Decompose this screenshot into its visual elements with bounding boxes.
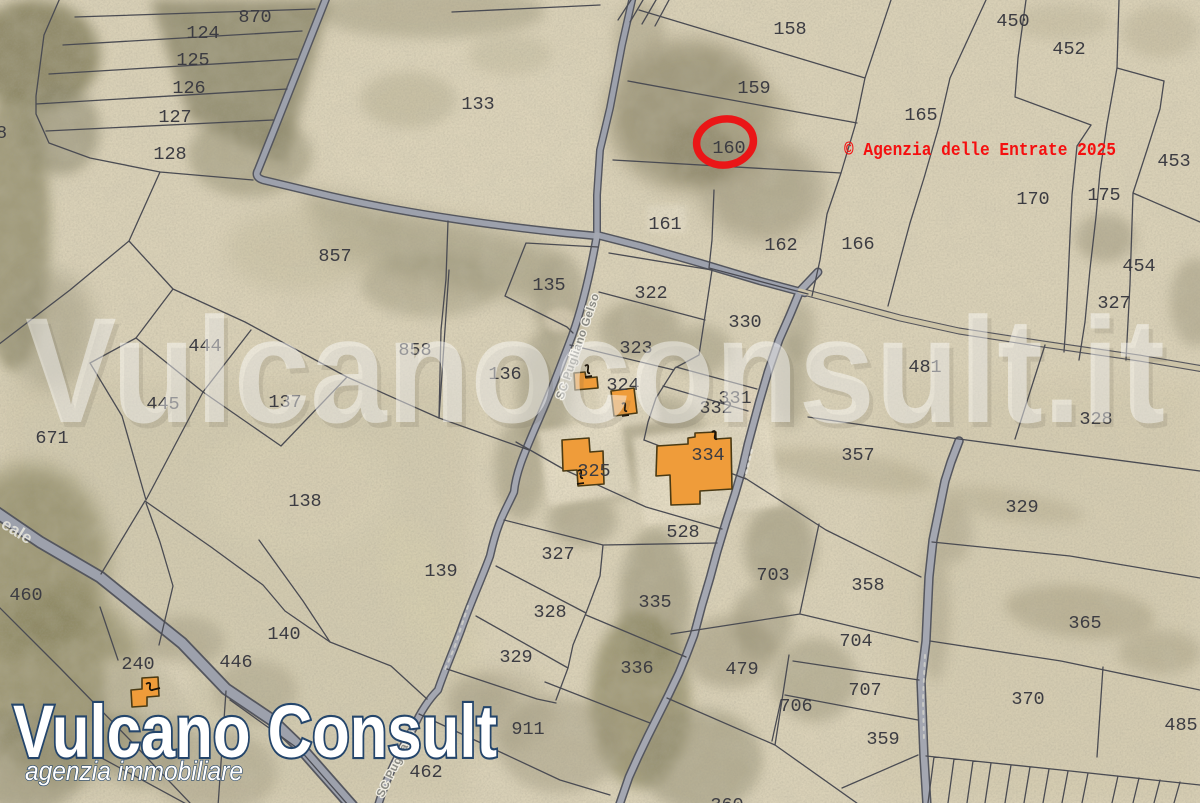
svg-text:138: 138 — [288, 491, 321, 512]
svg-text:328: 328 — [533, 602, 566, 623]
svg-text:140: 140 — [267, 624, 300, 645]
svg-text:446: 446 — [219, 652, 252, 673]
svg-text:706: 706 — [779, 696, 812, 717]
svg-text:911: 911 — [511, 719, 544, 740]
svg-text:125: 125 — [176, 50, 209, 71]
svg-text:703: 703 — [756, 565, 789, 586]
svg-text:707: 707 — [848, 680, 881, 701]
svg-text:160: 160 — [712, 138, 745, 159]
svg-text:240: 240 — [121, 654, 154, 675]
svg-text:857: 857 — [318, 246, 351, 267]
svg-text:159: 159 — [737, 78, 770, 99]
svg-text:453: 453 — [1157, 151, 1190, 172]
svg-text:452: 452 — [1052, 39, 1085, 60]
svg-text:agenzia immobiliare: agenzia immobiliare — [25, 756, 243, 786]
svg-text:335: 335 — [638, 592, 671, 613]
svg-text:133: 133 — [461, 94, 494, 115]
svg-text:127: 127 — [158, 107, 191, 128]
svg-text:460: 460 — [9, 585, 42, 606]
svg-text:124: 124 — [186, 23, 219, 44]
svg-text:454: 454 — [1122, 256, 1155, 277]
svg-text:126: 126 — [172, 78, 205, 99]
svg-text:165: 165 — [904, 105, 937, 126]
svg-text:161: 161 — [648, 214, 681, 235]
svg-text:Vulcanoconsult.it: Vulcanoconsult.it — [25, 286, 1165, 454]
svg-text:360: 360 — [710, 795, 743, 803]
svg-text:325: 325 — [577, 461, 610, 482]
svg-text:327: 327 — [541, 544, 574, 565]
svg-text:170: 170 — [1016, 189, 1049, 210]
svg-text:329: 329 — [1005, 497, 1038, 518]
svg-text:365: 365 — [1068, 613, 1101, 634]
svg-text:58: 58 — [0, 123, 7, 144]
svg-text:870: 870 — [238, 7, 271, 28]
svg-text:329: 329 — [499, 647, 532, 668]
svg-text:175: 175 — [1087, 185, 1120, 206]
svg-text:370: 370 — [1011, 689, 1044, 710]
svg-text:162: 162 — [764, 235, 797, 256]
svg-text:166: 166 — [841, 234, 874, 255]
svg-text:704: 704 — [839, 631, 872, 652]
svg-text:358: 358 — [851, 575, 884, 596]
svg-text:450: 450 — [996, 11, 1029, 32]
svg-text:359: 359 — [866, 729, 899, 750]
svg-text:479: 479 — [725, 659, 758, 680]
svg-text:139: 139 — [424, 561, 457, 582]
svg-text:128: 128 — [153, 144, 186, 165]
svg-text:528: 528 — [666, 522, 699, 543]
svg-text:336: 336 — [620, 658, 653, 679]
svg-text:158: 158 — [773, 19, 806, 40]
svg-text:485: 485 — [1164, 715, 1197, 736]
svg-text:© Agenzia delle Entrate 2025: © Agenzia delle Entrate 2025 — [844, 141, 1116, 161]
